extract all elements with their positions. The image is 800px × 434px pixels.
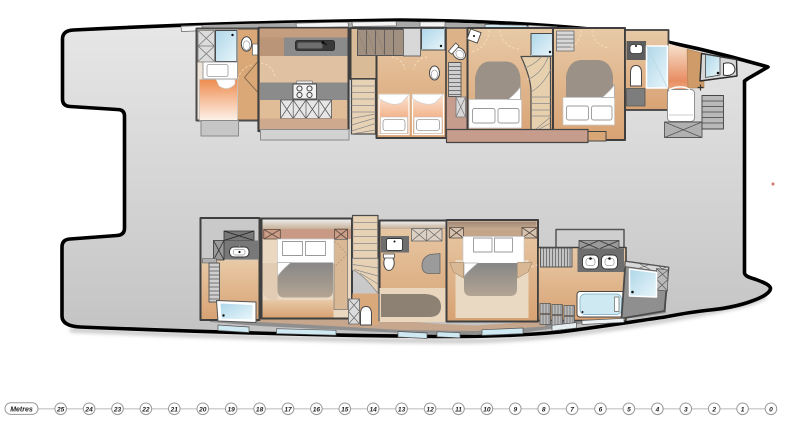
svg-text:15: 15 — [341, 406, 349, 413]
svg-text:10: 10 — [483, 406, 491, 413]
svg-text:13: 13 — [398, 406, 406, 413]
svg-text:23: 23 — [113, 406, 122, 413]
svg-text:7: 7 — [570, 406, 574, 413]
svg-text:1: 1 — [741, 406, 745, 413]
svg-text:12: 12 — [426, 406, 434, 413]
svg-text:11: 11 — [455, 406, 462, 413]
svg-text:4: 4 — [655, 406, 660, 413]
svg-text:Metres: Metres — [10, 406, 33, 413]
svg-text:25: 25 — [56, 406, 65, 413]
svg-text:18: 18 — [256, 406, 264, 413]
svg-text:16: 16 — [313, 406, 321, 413]
svg-text:14: 14 — [370, 406, 378, 413]
svg-text:24: 24 — [84, 406, 93, 413]
svg-text:8: 8 — [542, 406, 546, 413]
svg-text:5: 5 — [627, 406, 631, 413]
svg-text:0: 0 — [769, 406, 773, 413]
svg-text:19: 19 — [228, 406, 236, 413]
svg-text:9: 9 — [513, 406, 517, 413]
svg-text:20: 20 — [198, 406, 207, 413]
svg-text:21: 21 — [170, 406, 179, 413]
svg-text:17: 17 — [284, 406, 292, 413]
svg-text:2: 2 — [711, 406, 716, 413]
svg-text:22: 22 — [141, 406, 150, 413]
svg-text:3: 3 — [684, 406, 688, 413]
svg-text:6: 6 — [599, 406, 603, 413]
